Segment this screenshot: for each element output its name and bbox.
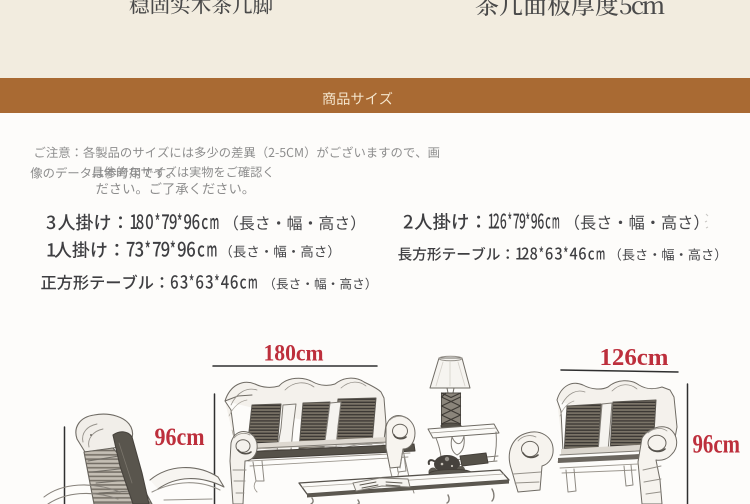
svg-text:126cm: 126cm [600, 345, 669, 371]
svg-text:96cm: 96cm [155, 422, 205, 451]
svg-text:96cm: 96cm [693, 429, 741, 459]
svg-text:180cm: 180cm [264, 341, 324, 366]
